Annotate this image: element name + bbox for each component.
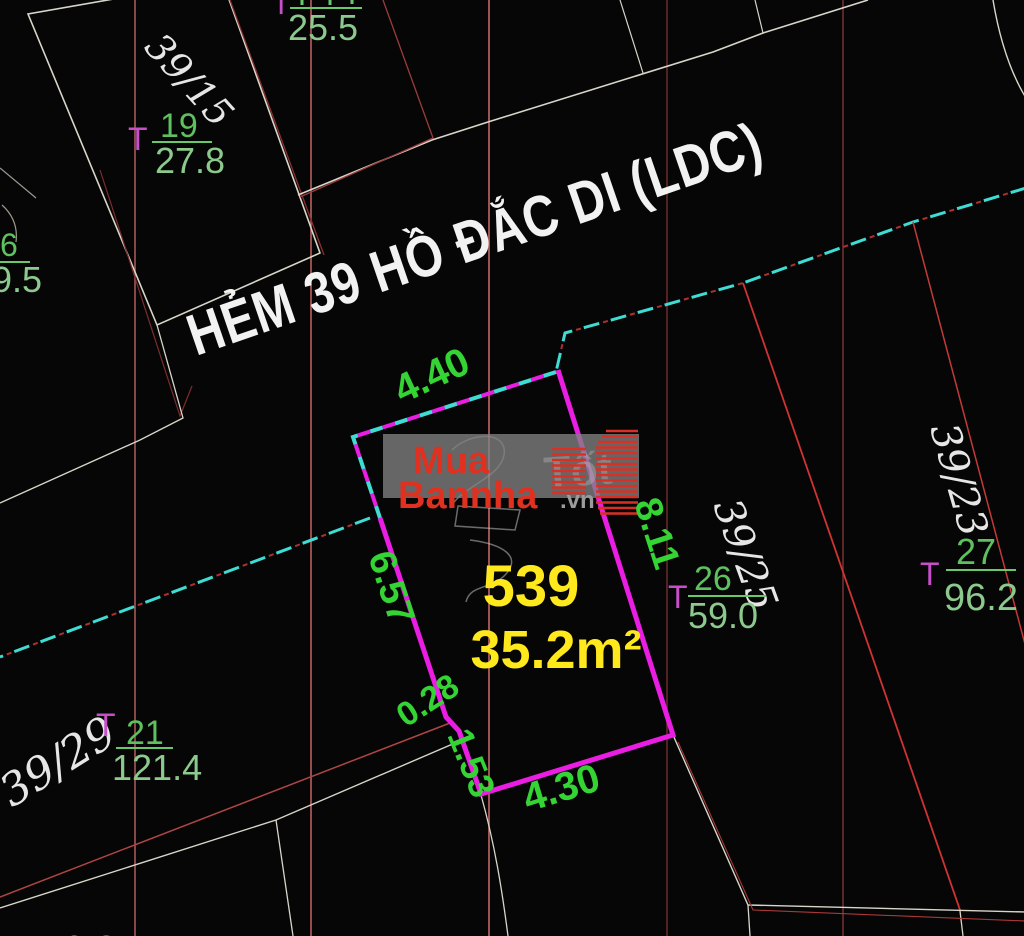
- numerator: 6: [0, 227, 18, 263]
- denominator: 59.0: [688, 595, 758, 636]
- cadastral-map: 39/15 T 19 27.8 T 25.5 6 9.5 39/25 T 26 …: [0, 0, 1024, 936]
- denominator: 121.4: [112, 747, 202, 788]
- t-marker: T: [920, 556, 940, 592]
- t-marker: T: [668, 579, 688, 615]
- numerator: 27: [956, 531, 996, 572]
- denominator: 96.2: [944, 577, 1018, 619]
- numerator: 26: [694, 560, 732, 598]
- t-marker: T: [96, 707, 116, 743]
- denominator: 25.5: [288, 7, 358, 48]
- t-marker: T: [128, 121, 148, 157]
- denominator: 27.8: [155, 140, 225, 181]
- cadastral-map-svg: 39/15 T 19 27.8 T 25.5 6 9.5 39/25 T 26 …: [0, 0, 1024, 936]
- denominator: 9.3: [64, 929, 117, 936]
- plot-number: 539: [483, 554, 580, 619]
- watermark-suffix: .vn: [560, 487, 595, 514]
- watermark-line2: Bannha: [398, 475, 538, 517]
- denominator: 9.5: [0, 259, 42, 300]
- plot-area: 35.2m²: [470, 620, 641, 680]
- building-hatch-left: [552, 449, 586, 493]
